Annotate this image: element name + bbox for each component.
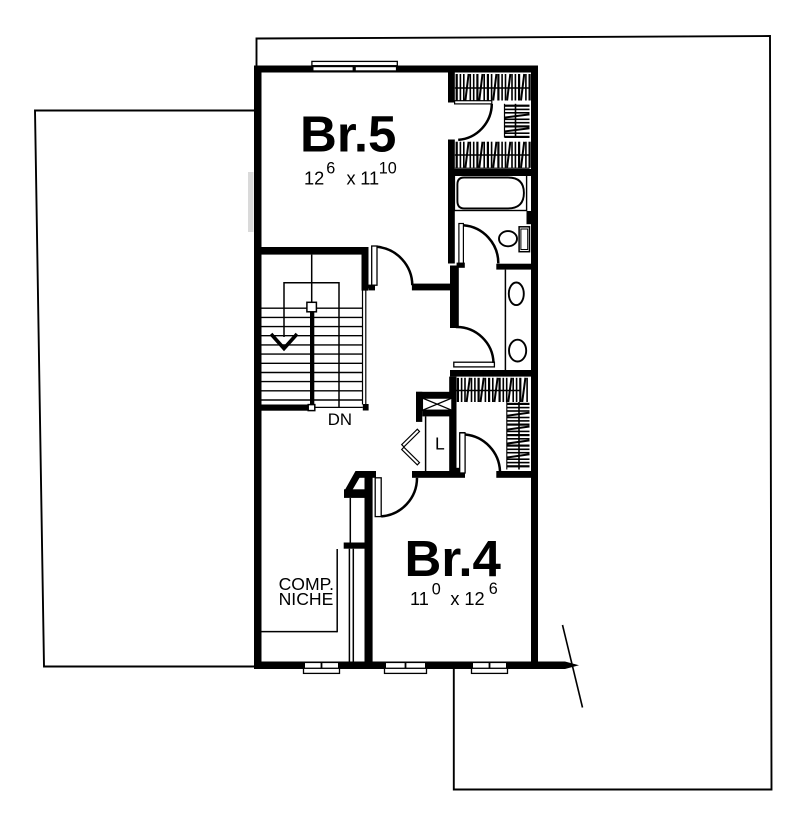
- svg-text:Br.5: Br.5: [300, 106, 396, 163]
- svg-text:NICHE: NICHE: [279, 589, 334, 609]
- svg-text:DN: DN: [328, 410, 352, 429]
- svg-text:Br.4: Br.4: [405, 530, 502, 587]
- svg-text:L: L: [435, 434, 445, 454]
